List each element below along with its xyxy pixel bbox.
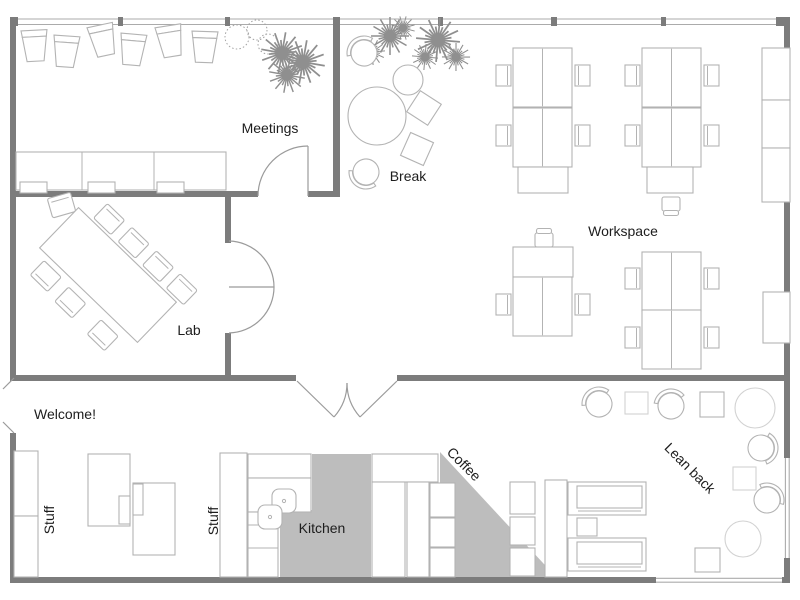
lounge-chair — [577, 382, 619, 423]
desk-chair — [662, 197, 680, 216]
cabinet — [647, 167, 693, 193]
stack-chair — [191, 31, 218, 63]
round-table — [393, 65, 423, 95]
wall-cabinet — [762, 100, 790, 148]
reception-desks — [88, 454, 175, 555]
side-table — [407, 91, 442, 126]
lean-back-label: Lean back — [662, 440, 720, 498]
tall-cabinet — [220, 453, 247, 577]
storage-shelf — [14, 516, 38, 577]
desk-chair — [575, 125, 590, 146]
desk-chair — [704, 327, 719, 348]
desk-chair — [496, 125, 511, 146]
desk-chair — [496, 294, 511, 315]
sink-icon — [258, 505, 282, 529]
lounge-chair — [652, 386, 690, 423]
desk-cluster — [496, 229, 590, 337]
lab-label: Lab — [177, 322, 201, 338]
kitchen-counter — [248, 454, 311, 478]
side-table — [625, 392, 648, 414]
stuff-middle-label: Stuff — [205, 507, 221, 536]
kitchen-counter — [372, 454, 438, 482]
cabinet — [510, 482, 535, 514]
desk-chair — [496, 65, 511, 86]
lounge-area: Lean back — [568, 382, 790, 572]
desk-chair — [575, 65, 590, 86]
meetings-label: Meetings — [242, 120, 299, 136]
kitchen-label: Kitchen — [299, 520, 346, 536]
pouf — [735, 388, 775, 428]
wall-cabinet — [762, 148, 790, 202]
chair — [55, 287, 86, 318]
stack-chair — [52, 35, 80, 68]
break-label: Break — [390, 168, 428, 184]
lounge-chair — [747, 432, 780, 465]
desk-cluster — [625, 252, 719, 369]
tall-cabinet — [407, 482, 429, 577]
desk-chair — [704, 65, 719, 86]
lab-room: Lab — [0, 171, 201, 368]
monitor — [133, 484, 143, 515]
coffee-floor-area — [440, 452, 556, 577]
desk-chair — [704, 268, 719, 289]
stack-chair — [118, 33, 147, 66]
break-area: Break — [342, 13, 475, 194]
cabinet — [518, 167, 568, 193]
meeting-counter — [16, 152, 226, 193]
desk-cluster — [625, 48, 719, 216]
desk-chair — [704, 125, 719, 146]
plant-icon — [225, 20, 331, 100]
desk-cluster — [496, 48, 590, 193]
chair — [87, 320, 118, 351]
workspace: Workspace — [496, 48, 790, 369]
chair — [30, 261, 61, 292]
side-table — [400, 132, 433, 165]
entry-jamb-tick — [3, 422, 14, 433]
pouf — [725, 521, 761, 557]
cabinet — [430, 548, 455, 577]
welcome-area: Welcome! Stuff — [14, 406, 175, 577]
wall-table — [763, 292, 790, 343]
stack-chair — [155, 24, 186, 59]
cabinet — [430, 483, 455, 517]
cabinet — [430, 518, 455, 547]
round-table — [348, 87, 406, 145]
monitor — [119, 496, 130, 524]
desk-chair — [575, 294, 590, 315]
desk-chair — [625, 327, 640, 348]
side-table — [577, 518, 597, 536]
desk-chair — [625, 65, 640, 86]
lab-table-group — [0, 171, 197, 368]
entrance-double-door — [297, 381, 397, 417]
floor-plan: Meetings Break — [0, 0, 800, 600]
cabinet — [513, 247, 573, 277]
sofa — [568, 482, 646, 515]
lab-double-door — [229, 241, 274, 333]
cabinet — [510, 517, 535, 545]
meetings-room: Meetings — [16, 20, 331, 193]
counter-stool — [20, 182, 47, 193]
stack-chair — [21, 30, 49, 62]
storage-shelf — [14, 451, 38, 516]
entry-jamb-tick — [3, 378, 14, 389]
wall-cabinet — [762, 48, 790, 100]
counter-stool — [88, 182, 115, 193]
side-table — [695, 548, 720, 572]
meetings-door — [258, 146, 308, 196]
counter-stool — [157, 182, 184, 193]
workspace-label: Workspace — [588, 223, 658, 239]
stack-chair — [87, 22, 119, 58]
desk-chair — [535, 229, 553, 248]
tall-cabinet — [372, 482, 405, 577]
desk-chair — [625, 125, 640, 146]
side-table — [733, 467, 756, 490]
sofa — [568, 538, 646, 571]
lounge-chair — [344, 153, 386, 194]
stuff-left-label: Stuff — [41, 506, 57, 535]
side-table — [700, 392, 724, 417]
cabinet — [510, 548, 535, 576]
tall-cabinet — [545, 480, 567, 577]
welcome-label: Welcome! — [34, 406, 96, 422]
floor-plan-drawing: Meetings Break — [0, 0, 800, 600]
desk-chair — [625, 268, 640, 289]
